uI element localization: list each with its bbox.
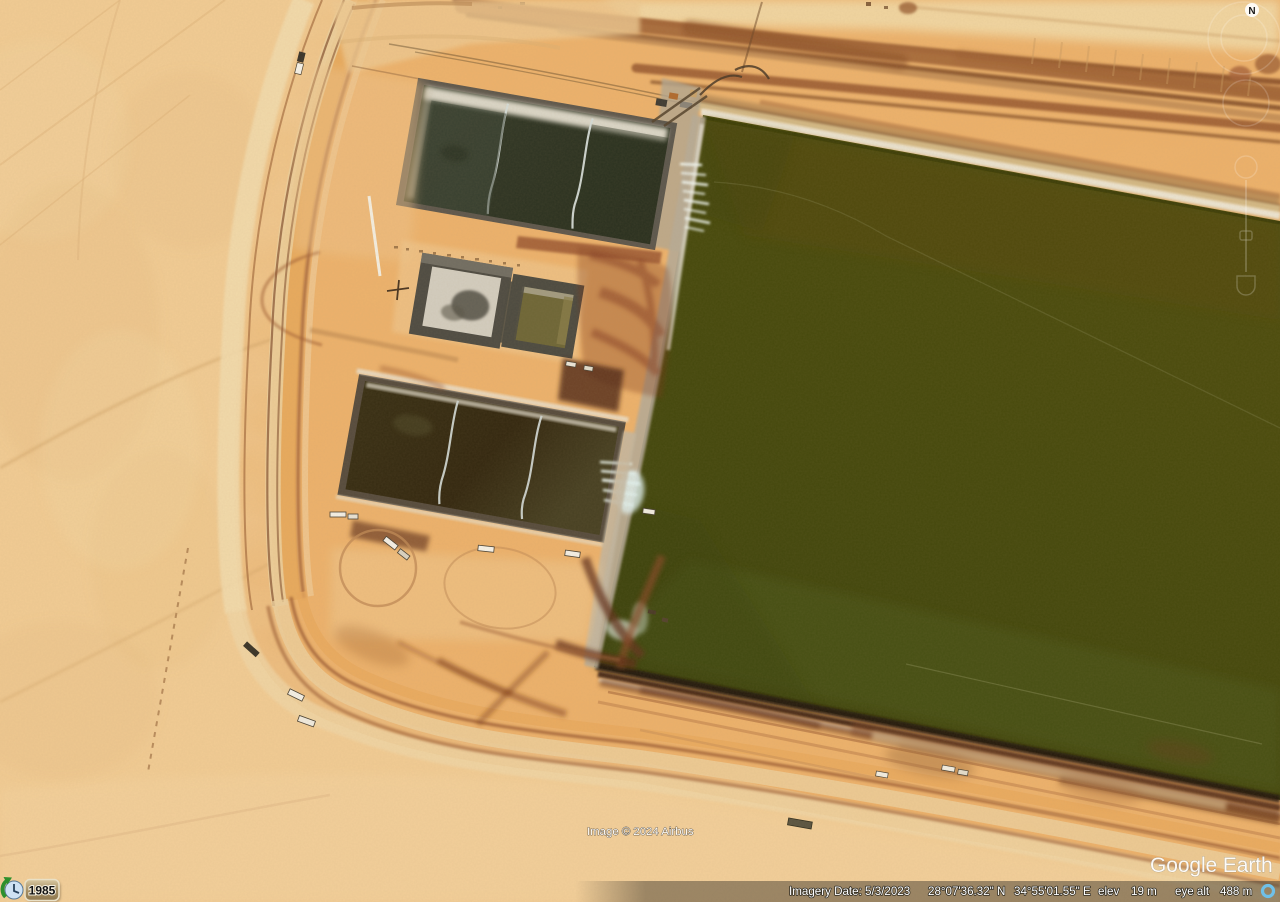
svg-text:488 m: 488 m (1220, 885, 1252, 898)
svg-text:Google Earth: Google Earth (1150, 854, 1273, 877)
svg-text:1985: 1985 (29, 884, 56, 898)
svg-text:Image © 2024 Airbus: Image © 2024 Airbus (587, 826, 694, 838)
svg-text:eye alt: eye alt (1175, 885, 1210, 898)
svg-text:28°07'36.32" N: 28°07'36.32" N (928, 885, 1005, 898)
svg-text:elev: elev (1098, 885, 1119, 898)
svg-text:34°55'01.55" E: 34°55'01.55" E (1014, 885, 1091, 898)
svg-text:Imagery Date: 5/3/2023: Imagery Date: 5/3/2023 (789, 885, 910, 898)
svg-text:N: N (1248, 6, 1255, 17)
svg-text:19 m: 19 m (1131, 885, 1157, 898)
